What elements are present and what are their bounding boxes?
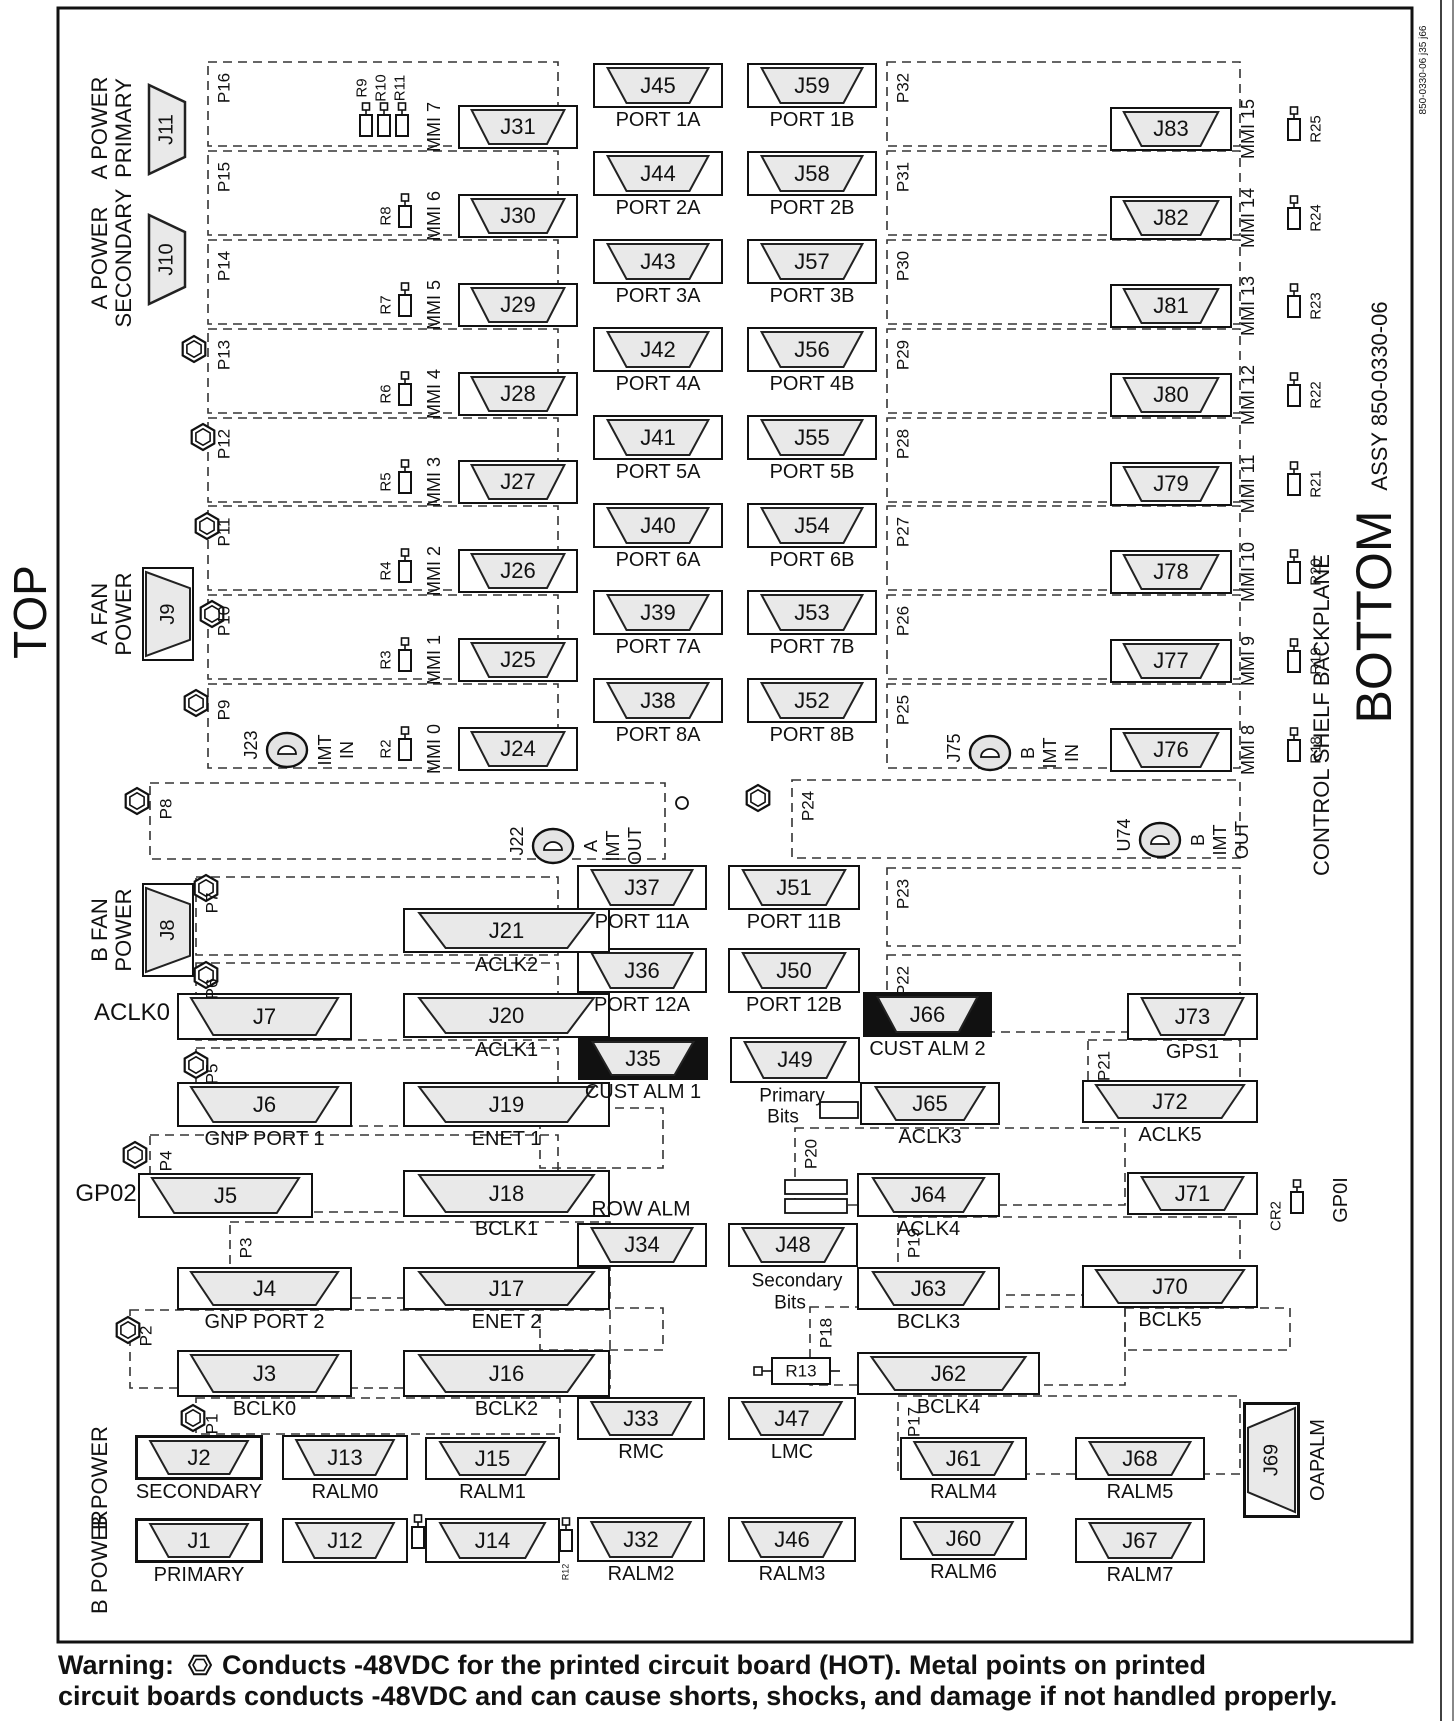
connector-label: J71 [1129, 1174, 1256, 1213]
aclk0-label: ACLK0 [94, 1001, 170, 1025]
resistor-body [1288, 208, 1300, 229]
slot-label-p26: P26 [895, 606, 912, 636]
slot-label-p3: P3 [238, 1238, 255, 1259]
small-circle [676, 797, 688, 809]
connector-label: J6 [179, 1084, 350, 1125]
connector-label: J54 [749, 505, 875, 546]
connector-label: J1 [138, 1521, 260, 1560]
connector-label: J2 [138, 1438, 260, 1477]
resistor-label-r22: R22 [1309, 381, 1324, 409]
connector-j46: J46 [728, 1517, 856, 1562]
connector-j8: J8 [142, 883, 194, 977]
oapalm-label: OAPALM [1308, 1419, 1328, 1501]
connector-j60: J60 [900, 1517, 1027, 1560]
connector-label: J81 [1112, 286, 1230, 326]
connector-j48: J48 [728, 1223, 858, 1267]
resistor-body [360, 115, 372, 136]
connector-j80: J80 [1110, 373, 1232, 417]
slot-label-p1: P1 [204, 1414, 221, 1435]
resistor-label-r8: R8 [379, 206, 394, 225]
resistor-body [1288, 119, 1300, 140]
warning-prefix: Warning: [58, 1650, 174, 1680]
connector-label: J82 [1112, 198, 1230, 238]
connector-label: J29 [460, 285, 576, 325]
connector-j70: J70 [1082, 1265, 1258, 1308]
connector-label: J42 [595, 329, 721, 370]
connector-j2: J2 [135, 1435, 263, 1480]
connector-sublabel-bclk0: BCLK0 [167, 1398, 362, 1421]
backplane-title: CONTROL SHELF BACKPLANE [1311, 554, 1333, 876]
connector-sublabel-port-7a: PORT 7A [583, 636, 733, 659]
connector-j77: J77 [1110, 639, 1232, 683]
connector-sublabel-bclk5: BCLK5 [1072, 1309, 1268, 1332]
imt-caption-j22-2: OUT [626, 827, 644, 865]
slot-label-p4: P4 [158, 1151, 175, 1172]
connector-j56: J56 [747, 327, 877, 372]
connector-j39: J39 [593, 590, 723, 635]
connector-label: J24 [460, 729, 576, 769]
connector-label: J40 [595, 505, 721, 546]
connector-sublabel-port-5b: PORT 5B [737, 461, 887, 484]
connector-j76: J76 [1110, 728, 1232, 772]
connector-j62: J62 [857, 1352, 1040, 1395]
connector-label: J72 [1084, 1082, 1256, 1121]
connector-j29: J29 [458, 283, 578, 327]
connector-sublabel-port-4b: PORT 4B [737, 373, 887, 396]
connector-label: J62 [859, 1354, 1038, 1393]
connector-sublabel-cust-alm-2: CUST ALM 2 [853, 1038, 1002, 1061]
connector-j42: J42 [593, 327, 723, 372]
connector-sublabel-ralm6: RALM6 [890, 1561, 1037, 1584]
connector-j32: J32 [577, 1517, 705, 1562]
slot-label-p24: P24 [800, 791, 817, 821]
top-label: TOP [7, 565, 53, 659]
resistor-lead [1291, 550, 1298, 557]
connector-j72: J72 [1082, 1080, 1258, 1123]
connector-j30: J30 [458, 194, 578, 238]
connector-label: J3 [179, 1352, 350, 1395]
connector-label: J45 [595, 65, 721, 106]
imt-caption-j22-1: IMT [604, 831, 622, 862]
slot-label-p27: P27 [895, 517, 912, 547]
resistor-lead [1291, 107, 1298, 114]
U74-key [1151, 836, 1169, 844]
connector-j5: J5 [138, 1173, 313, 1218]
connector-j27: J27 [458, 460, 578, 504]
connector-label: J64 [859, 1175, 998, 1215]
connector-sublabel-port-2b: PORT 2B [737, 197, 887, 220]
resistor-label-r18: R18 [1309, 736, 1324, 764]
connector-j53: J53 [747, 590, 877, 635]
connector-label: J26 [460, 551, 576, 591]
connector-label: J8 [123, 906, 213, 954]
connector-label: J50 [730, 950, 858, 991]
connector-label: J16 [405, 1352, 608, 1395]
resistor-label-r21: R21 [1309, 470, 1324, 498]
resistor-label-cr2: CR2 [1269, 1201, 1284, 1231]
slot-label-p14: P14 [216, 251, 233, 281]
connector-j66: J66 [863, 992, 992, 1037]
connector-j63: J63 [857, 1267, 1000, 1310]
resistor-lead [402, 372, 409, 379]
resistor-lead [402, 549, 409, 556]
imt-caption-j75-2: IN [1063, 744, 1081, 762]
gp02-label: GP02 [75, 1182, 136, 1206]
secondary-bits-1: Secondary [752, 1272, 843, 1291]
connector-label: J68 [1077, 1439, 1203, 1478]
slot-p23 [887, 868, 1240, 946]
connector-j49: J49 [730, 1037, 860, 1083]
mmi-11: MMI 11 [1239, 455, 1257, 514]
resistor-label-r3: R3 [379, 650, 394, 669]
mmi-12: MMI 12 [1239, 365, 1257, 425]
connector-sublabel-cust-alm-1: CUST ALM 1 [568, 1081, 718, 1104]
b-power-primary: B POWER [89, 1510, 111, 1614]
resistor-label-r6: R6 [379, 384, 394, 403]
part-number: 850-0330-06 j35 j66 [1419, 26, 1429, 115]
connector-sublabel-bclk2: BCLK2 [393, 1398, 620, 1421]
resistor-label-r9: R9 [355, 78, 370, 97]
primary-bits-2: Bits [767, 1108, 799, 1127]
mmi-8: MMI 8 [1239, 725, 1257, 775]
resistor-lead [402, 194, 409, 201]
connector-label: J52 [749, 680, 875, 721]
connector-sublabel-rmc: RMC [567, 1441, 715, 1464]
connector-label: J65 [862, 1084, 998, 1123]
connector-label: J5 [140, 1175, 311, 1216]
connector-label: J61 [902, 1439, 1025, 1478]
connector-label: J37 [579, 867, 705, 908]
connector-sublabel-ralm7: RALM7 [1065, 1564, 1215, 1587]
connector-sublabel-gnp-port-1: GNP PORT 1 [167, 1128, 362, 1151]
connector-j10: J10 [147, 212, 187, 307]
connector-sublabel-port-6a: PORT 6A [583, 549, 733, 572]
connector-j25: J25 [458, 638, 578, 682]
a-fan-power-1: A FAN [89, 583, 111, 645]
connector-j28: J28 [458, 372, 578, 416]
mmi-13: MMI 13 [1239, 276, 1257, 336]
connector-j9: J9 [142, 567, 194, 661]
mmi-15: MMI 15 [1239, 99, 1257, 159]
slot-label-p6: P6 [204, 979, 221, 1000]
b-fan-power-1: B FAN [89, 898, 111, 962]
connector-label: J53 [749, 592, 875, 633]
connector-j55: J55 [747, 415, 877, 460]
resistor-label-r13: R13 [785, 1363, 816, 1380]
connector-j79: J79 [1110, 462, 1232, 506]
connector-label: J4 [179, 1269, 350, 1308]
resistor-label-r19: R19 [1309, 647, 1324, 675]
connector-sublabel-aclk5: ACLK5 [1072, 1124, 1268, 1147]
connector-j45: J45 [593, 63, 723, 108]
resistor-body [412, 1527, 424, 1548]
connector-label: J43 [595, 241, 721, 282]
connector-j16: J16 [403, 1350, 610, 1397]
resistor-lead [402, 283, 409, 290]
connector-label: J17 [405, 1269, 608, 1308]
connector-label: J41 [595, 417, 721, 458]
connector-label: J13 [284, 1437, 406, 1478]
slot-label-p25: P25 [895, 695, 912, 725]
mmi-14: MMI 14 [1239, 188, 1257, 248]
connector-j68: J68 [1075, 1437, 1205, 1480]
resistor-body [1288, 385, 1300, 406]
mmi-7: MMI 7 [425, 102, 443, 152]
slot-label-p32: P32 [895, 73, 912, 103]
connector-j73: J73 [1127, 993, 1258, 1040]
connector-label: J76 [1112, 730, 1230, 770]
resistor-label-r12: R12 [562, 1564, 571, 1581]
connector-j40: J40 [593, 503, 723, 548]
connector-j6: J6 [177, 1082, 352, 1127]
connector-sublabel-aclk1: ACLK1 [393, 1039, 620, 1062]
connector-label: J77 [1112, 641, 1230, 681]
connector-j13: J13 [282, 1435, 408, 1480]
connector-j41: J41 [593, 415, 723, 460]
slot-label-p30: P30 [895, 251, 912, 281]
mmi-6: MMI 6 [425, 191, 443, 241]
connector-label: J18 [405, 1172, 608, 1215]
connector-sublabel-port-3a: PORT 3A [583, 285, 733, 308]
connector-label: J25 [460, 640, 576, 680]
resistor-body [1288, 740, 1300, 761]
resistor-body [399, 472, 411, 493]
slot-label-p21: P21 [1096, 1051, 1113, 1081]
mmi-5: MMI 5 [425, 280, 443, 330]
connector-j24: J24 [458, 727, 578, 771]
component-rect [785, 1180, 847, 1194]
slot-label-p20: P20 [803, 1139, 820, 1169]
a-fan-power-2: POWER [113, 572, 135, 655]
connector-sublabel-port-6b: PORT 6B [737, 549, 887, 572]
resistor-lead [1291, 196, 1298, 203]
resistor-body [399, 295, 411, 316]
a-power-primary-1: A POWER [89, 77, 111, 180]
warning-line2: circuit boards conducts -48VDC and can c… [58, 1681, 1448, 1712]
resistor-lead [402, 638, 409, 645]
connector-label: J79 [1112, 464, 1230, 504]
resistor-label-r24: R24 [1309, 204, 1324, 232]
connector-j7: J7 [177, 993, 352, 1040]
connector-sublabel-aclk2: ACLK2 [393, 954, 620, 977]
connector-j50: J50 [728, 948, 860, 993]
connector-j81: J81 [1110, 284, 1232, 328]
secondary-bits-2: Bits [774, 1294, 806, 1313]
connector-label: J55 [749, 417, 875, 458]
connector-sublabel-port-3b: PORT 3B [737, 285, 887, 308]
connector-j51: J51 [728, 865, 860, 910]
imt-caption-u74-1: IMT [1211, 825, 1229, 856]
connector-label: J67 [1077, 1520, 1203, 1561]
slot-label-p8: P8 [158, 799, 175, 820]
imt-caption-j23-0: IMT [316, 735, 334, 766]
a-power-primary-2: PRIMARY [113, 78, 135, 178]
connector-j12: J12 [282, 1518, 408, 1563]
resistor-lead [402, 460, 409, 467]
connector-label: J12 [284, 1520, 406, 1561]
connector-sublabel-port-7b: PORT 7B [737, 636, 887, 659]
bottom-label: BOTTOM [1349, 511, 1399, 724]
slot-label-p31: P31 [895, 162, 912, 192]
mmi-4: MMI 4 [425, 369, 443, 419]
connector-j17: J17 [403, 1267, 610, 1310]
imt-caption-j22-0: A [582, 840, 600, 852]
resistor-label-r5: R5 [379, 472, 394, 491]
resistor-label-r23: R23 [1309, 292, 1324, 320]
connector-label: J32 [579, 1519, 703, 1560]
imt-caption-j23-1: IN [338, 741, 356, 759]
connector-j83: J83 [1110, 107, 1232, 151]
connector-sublabel-aclk3: ACLK3 [850, 1126, 1010, 1149]
connector-label: J70 [1084, 1267, 1256, 1306]
resistor-label-r4: R4 [379, 561, 394, 580]
resistor-label-r7: R7 [379, 295, 394, 314]
connector-j71: J71 [1127, 1172, 1258, 1215]
connector-sublabel-port-11b: PORT 11B [718, 911, 870, 934]
connector-j44: J44 [593, 151, 723, 196]
connector-j69: J69 [1243, 1402, 1300, 1518]
slot-label-p16: P16 [216, 73, 233, 103]
connector-sublabel-secondary: SECONDARY [125, 1481, 273, 1504]
connector-sublabel-port-12b: PORT 12B [718, 994, 870, 1017]
connector-j54: J54 [747, 503, 877, 548]
slot-label-p17: P17 [906, 1407, 923, 1437]
connector-label: J14 [427, 1520, 558, 1561]
imt-label-u74: U74 [1115, 818, 1133, 851]
resistor-label-r11: R11 [393, 75, 408, 101]
connector-sublabel-port-8b: PORT 8B [737, 724, 887, 747]
connector-label: J80 [1112, 375, 1230, 415]
connector-j78: J78 [1110, 550, 1232, 594]
connector-sublabel-ralm3: RALM3 [718, 1563, 866, 1586]
b-fan-power-2: POWER [113, 888, 135, 971]
component-rect [820, 1102, 858, 1118]
resistor-body [560, 1530, 572, 1551]
connector-label: J66 [865, 994, 990, 1035]
resistor-body [399, 206, 411, 227]
resistor-body [378, 115, 390, 136]
connector-j58: J58 [747, 151, 877, 196]
primary-bits-1: Primary [759, 1087, 824, 1106]
connector-sublabel-enet-1: ENET 1 [393, 1128, 620, 1151]
mmi-0: MMI 0 [425, 724, 443, 774]
resistor-lead [1294, 1180, 1301, 1187]
connector-j82: J82 [1110, 196, 1232, 240]
connector-sublabel-port-11a: PORT 11A [567, 911, 717, 934]
connector-j65: J65 [860, 1082, 1000, 1125]
connector-sublabel-gnp-port-2: GNP PORT 2 [167, 1311, 362, 1334]
resistor-lead [402, 727, 409, 734]
connector-j38: J38 [593, 678, 723, 723]
connector-label: J56 [749, 329, 875, 370]
slot-label-p22: P22 [895, 966, 912, 996]
connector-j15: J15 [425, 1437, 560, 1480]
connector-label: J83 [1112, 109, 1230, 149]
slot-label-p28: P28 [895, 429, 912, 459]
connector-label: J9 [123, 590, 213, 638]
connector-j43: J43 [593, 239, 723, 284]
connector-label: J39 [595, 592, 721, 633]
imt-label-j22: J22 [508, 826, 526, 855]
connector-sublabel-bclk4: BCLK4 [847, 1396, 1050, 1419]
imt-caption-u74-2: OUT [1233, 821, 1251, 859]
connector-j59: J59 [747, 63, 877, 108]
connector-label: J73 [1129, 995, 1256, 1038]
resistor-lead [1291, 639, 1298, 646]
resistor-label-r10: R10 [374, 74, 389, 102]
connector-label: J63 [859, 1269, 998, 1308]
J75-key [981, 749, 999, 757]
resistor-body [396, 115, 408, 136]
resistor-body [1288, 474, 1300, 495]
connector-sublabel-primary: PRIMARY [125, 1564, 273, 1587]
connector-label: J46 [730, 1519, 854, 1560]
resistor-lead [1291, 284, 1298, 291]
warning-line1: Conducts -48VDC for the printed circuit … [222, 1650, 1206, 1680]
connector-sublabel-ralm0: RALM0 [272, 1481, 418, 1504]
imt-caption-j75-0: B [1019, 747, 1037, 759]
imt-caption-j75-1: IMT [1041, 738, 1059, 769]
J22-key [544, 842, 562, 850]
connector-label: J28 [460, 374, 576, 414]
mmi-1: MMI 1 [425, 635, 443, 685]
connector-j31: J31 [458, 105, 578, 149]
connector-j57: J57 [747, 239, 877, 284]
connector-j11: J11 [147, 82, 187, 177]
connector-label: J49 [732, 1039, 858, 1081]
connector-label: J59 [749, 65, 875, 106]
slot-label-p19: P19 [906, 1228, 923, 1258]
slot-label-p11: P11 [216, 518, 233, 547]
hex-nut-icon [188, 1653, 212, 1677]
connector-label: J58 [749, 153, 875, 194]
connector-sublabel-bclk3: BCLK3 [847, 1311, 1010, 1334]
connector-j47: J47 [728, 1397, 856, 1440]
assy-number: ASSY 850-0330-06 [1369, 301, 1391, 490]
resistor-body [1288, 562, 1300, 583]
connector-j3: J3 [177, 1350, 352, 1397]
resistor-lead [1291, 462, 1298, 469]
imt-caption-u74-0: B [1189, 834, 1207, 846]
connector-sublabel-lmc: LMC [718, 1441, 866, 1464]
connector-j14: J14 [425, 1518, 560, 1563]
slot-label-p15: P15 [216, 162, 233, 192]
a-power-secondary-1: A POWER [89, 207, 111, 310]
mmi-3: MMI 3 [425, 457, 443, 507]
slot-label-p9: P9 [216, 700, 233, 721]
connector-j26: J26 [458, 549, 578, 593]
row-alm-label: ROW ALM [591, 1199, 690, 1220]
connector-sublabel-ralm5: RALM5 [1065, 1481, 1215, 1504]
connector-sublabel-ralm2: RALM2 [567, 1563, 715, 1586]
resistor-lead [1291, 728, 1298, 735]
connector-j64: J64 [857, 1173, 1000, 1217]
resistor-label-r20: R20 [1309, 558, 1324, 586]
mmi-2: MMI 2 [425, 546, 443, 596]
connector-label: J78 [1112, 552, 1230, 592]
connector-sublabel-port-1b: PORT 1B [737, 109, 887, 132]
connector-label: J7 [179, 995, 350, 1038]
mmi-9: MMI 9 [1239, 636, 1257, 686]
connector-j52: J52 [747, 678, 877, 723]
slot-label-p29: P29 [895, 340, 912, 370]
connector-label: J44 [595, 153, 721, 194]
connector-sublabel-port-1a: PORT 1A [583, 109, 733, 132]
J23-key [278, 746, 296, 754]
connector-j1: J1 [135, 1518, 263, 1563]
connector-sublabel-aclk4: ACLK4 [847, 1218, 1010, 1241]
gp0i-label: GP0I [1331, 1177, 1351, 1223]
